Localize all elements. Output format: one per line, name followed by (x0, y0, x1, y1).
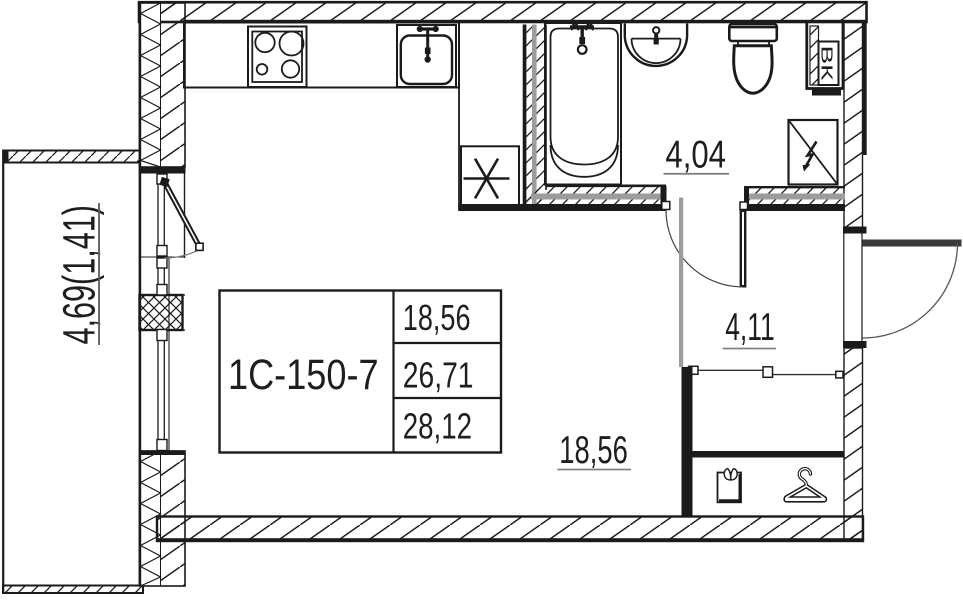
svg-text:4,69(1,41): 4,69(1,41) (53, 205, 104, 345)
svg-text:18,56: 18,56 (559, 429, 628, 472)
svg-text:4,04: 4,04 (665, 134, 726, 177)
svg-text:4,11: 4,11 (725, 306, 775, 349)
svg-text:ВК: ВК (818, 46, 835, 82)
svg-text:28,12: 28,12 (403, 406, 472, 447)
svg-text:18,56: 18,56 (403, 297, 471, 338)
svg-text:1С-150-7: 1С-150-7 (228, 351, 379, 399)
svg-text:26,71: 26,71 (403, 354, 474, 395)
